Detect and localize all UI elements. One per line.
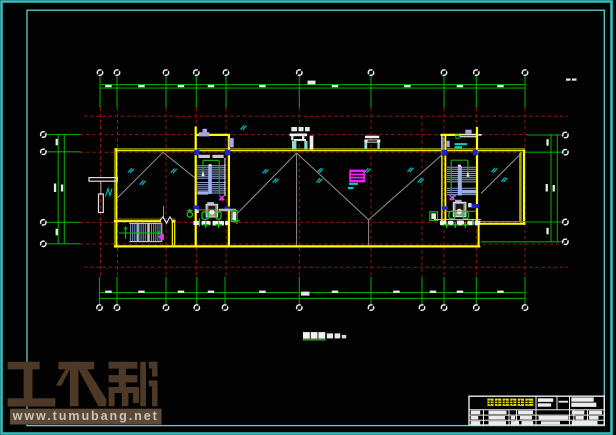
svg-text:www.tumubang.net: www.tumubang.net xyxy=(12,409,159,423)
